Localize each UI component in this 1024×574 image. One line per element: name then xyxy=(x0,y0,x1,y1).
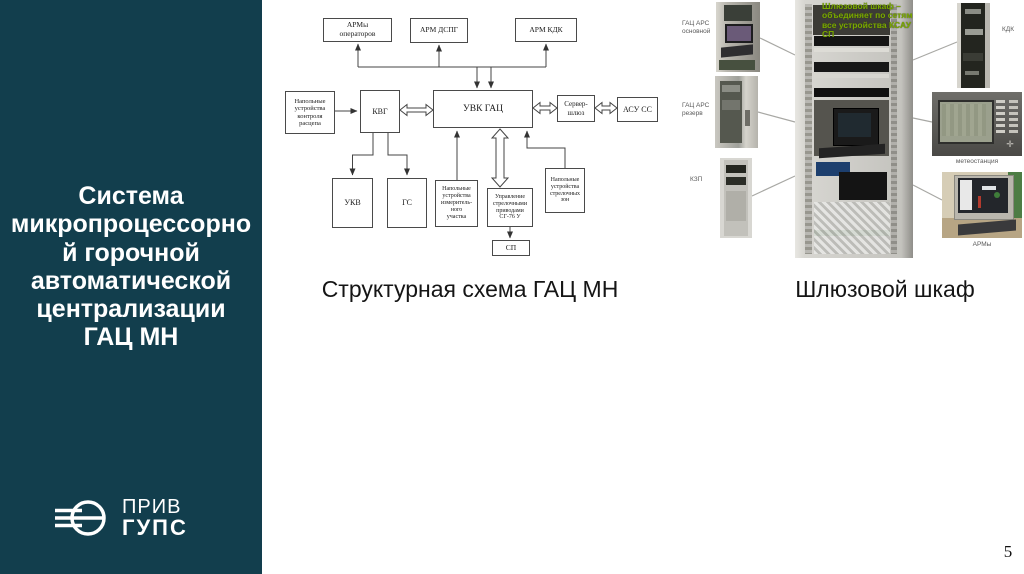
double-arrow-server-asu xyxy=(595,103,617,114)
gateway-overlay-note: Шлюзовой шкаф – объединяет по сетям все … xyxy=(822,2,917,39)
label-arm: АРМы xyxy=(942,241,1022,249)
double-arrow-kvg-uvk xyxy=(400,105,433,116)
box-asu-ss: АСУ СС xyxy=(617,97,658,122)
label-kzp: КЗП xyxy=(690,176,702,184)
photo-kdk xyxy=(957,3,990,88)
box-kvg: КВГ xyxy=(360,90,400,133)
photos-caption: Шлюзовой шкаф xyxy=(770,276,1000,303)
photo-arm-workstation xyxy=(942,172,1022,238)
box-uvk-gac: УВК ГАЦ xyxy=(433,90,533,128)
box-turnout-control: Управление стрелочными приводами СГ-76 У xyxy=(487,188,533,227)
box-ukv: УКВ xyxy=(332,178,373,228)
label-kdk: КДК xyxy=(1002,26,1014,34)
label-gac-ars-reserve: ГАЦ АРС резерв xyxy=(682,102,709,118)
photo-gac-ars-main xyxy=(716,2,760,72)
logo-text: ПРИВ ГУПС xyxy=(122,497,188,539)
label-meteo: метеостанция xyxy=(932,158,1022,166)
sidebar: Система микропроцессорно й горочной авто… xyxy=(0,0,262,574)
logo-name: ГУПС xyxy=(122,517,188,539)
double-arrow-uvk-turnout-control xyxy=(492,129,508,187)
box-gs: ГС xyxy=(387,178,427,228)
photo-gac-ars-reserve xyxy=(715,76,758,148)
priv-gups-logo: ПРИВ ГУПС xyxy=(52,488,188,548)
page-number: 5 xyxy=(998,542,1018,562)
winged-wheel-logo-icon xyxy=(52,488,112,548)
diagram-caption: Структурная схема ГАЦ МН xyxy=(290,276,650,303)
photo-kzp xyxy=(720,158,752,238)
label-gac-ars-main: ГАЦ АРС основной xyxy=(682,20,710,36)
arrow-turnout-zones-to-uvk xyxy=(527,131,565,168)
slide-title: Система микропроцессорно й горочной авто… xyxy=(4,182,258,352)
structural-diagram: АРМы операторов АРМ ДСПГ АРМ КДК Напольн… xyxy=(278,8,664,264)
photo-meteo-station: ✛ xyxy=(932,92,1022,156)
box-arm-operators: АРМы операторов xyxy=(323,18,392,42)
meteo-keypad: ✛ xyxy=(1004,138,1016,150)
logo-prefix: ПРИВ xyxy=(122,497,188,517)
arrow-kvg-to-gs xyxy=(388,133,407,175)
box-field-measuring: Напольные устройства измеритель- ного уч… xyxy=(435,180,478,227)
double-arrow-uvk-server xyxy=(533,103,557,114)
box-arm-kdk: АРМ КДК xyxy=(515,18,577,42)
box-field-uncoupling: Напольные устройства контроля расцепа xyxy=(285,91,335,134)
box-arm-dspg: АРМ ДСПГ xyxy=(410,18,468,43)
presentation-slide: Система микропроцессорно й горочной авто… xyxy=(0,0,1024,574)
box-server-gateway: Сервер- шлюз xyxy=(557,95,595,122)
box-field-turnout-zones: Напольные устройства стрелочных зон xyxy=(545,168,585,213)
box-sp: СП xyxy=(492,240,530,256)
arrow-kvg-to-ukv xyxy=(353,133,374,175)
